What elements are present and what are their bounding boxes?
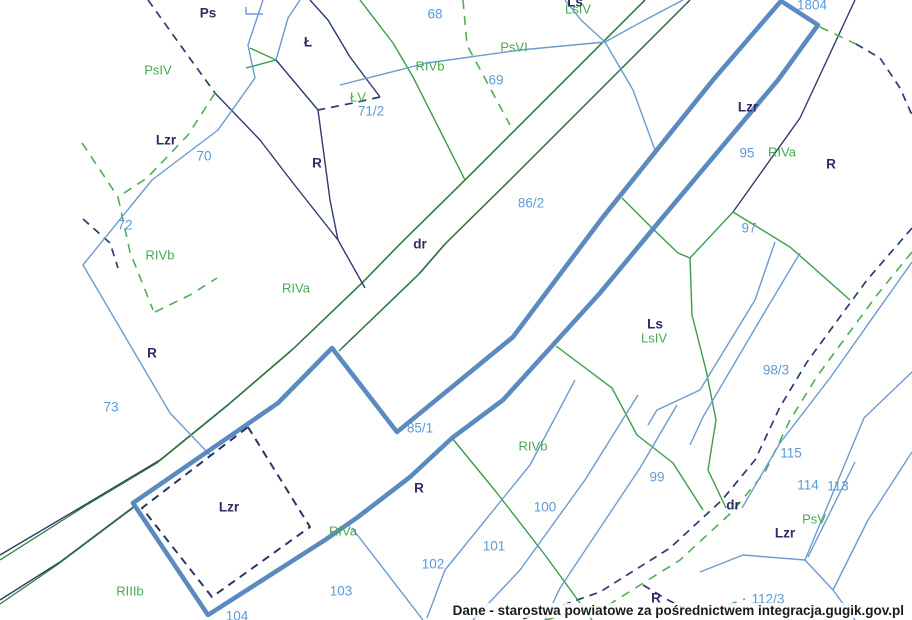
parcel-number-label-68: 68 <box>427 7 442 21</box>
landuse-type-label-R: R <box>826 157 836 171</box>
parcel-number-label-113: 113 <box>827 479 849 493</box>
parcel-number-label-100: 100 <box>534 500 557 514</box>
landuse-type-label-Ls: Ls <box>647 317 663 331</box>
landuse-label-PsVI: PsVI <box>500 41 527 54</box>
landuse-type-label-Lzr: Lzr <box>738 100 758 114</box>
parcel-number-label-103: 103 <box>330 584 353 598</box>
parcel-number-label-99: 99 <box>649 470 664 484</box>
parcel-number-label-1804: 1804 <box>797 0 827 12</box>
contour-line <box>340 42 605 85</box>
parcel-number-label-85-1: 85/1 <box>407 421 433 435</box>
landuse-label-RIVb: RIVb <box>519 440 548 453</box>
landuse-label-PsIV: PsIV <box>144 64 171 77</box>
landuse-label-LsIV: LsIV <box>641 332 667 345</box>
landuse-type-label-R: R <box>414 481 424 495</box>
landuse-line <box>360 0 465 180</box>
contour-line <box>276 0 300 60</box>
contour-line <box>605 0 683 42</box>
map-attribution: Dane - starostwa powiatowe za pośrednict… <box>451 603 906 618</box>
contour-line <box>605 42 655 150</box>
parcel-number-label-95: 95 <box>739 146 754 160</box>
parcel-number-label-101: 101 <box>483 539 506 553</box>
parcel-number-label-71-2: 71/2 <box>358 104 384 118</box>
parcel-number-label-104: 104 <box>226 609 249 620</box>
landuse-line <box>246 60 276 68</box>
landuse-line <box>556 346 703 510</box>
road-edge <box>0 3 642 560</box>
landuse-line <box>690 258 726 508</box>
landuse-label-RIVb: RIVb <box>416 60 445 73</box>
landuse-type-label-Lzr: Lzr <box>156 133 176 147</box>
parcel-boundary <box>215 93 365 288</box>
map-canvas[interactable]: 68697071/2727385/186/2959798/39910010110… <box>0 0 912 620</box>
landuse-dashed <box>155 278 217 312</box>
landuse-dashed <box>82 143 118 197</box>
contour-line <box>352 528 423 620</box>
landuse-label-RIIIb: RIIIb <box>116 585 143 598</box>
landuse-label-RIVa: RIVa <box>768 146 796 159</box>
road-corridor <box>0 0 690 604</box>
landuse-label-PsV: PsV <box>802 513 826 526</box>
parcel-boundaries-navy <box>83 0 912 613</box>
parcel-number-label-97: 97 <box>741 221 756 235</box>
landuse-dashed <box>820 27 856 44</box>
landuse-contours <box>82 0 850 620</box>
parcel-number-label-115: 115 <box>780 446 802 460</box>
parcel-number-label-102: 102 <box>422 557 445 571</box>
landuse-type-label-Lzr: Lzr <box>219 500 239 514</box>
road-edge <box>0 0 645 555</box>
landuse-type-label-Ps: Ps <box>200 6 217 20</box>
landuse-label-RIVa: RIVa <box>329 525 357 538</box>
parcel-boundary <box>318 110 338 240</box>
landuse-label-RIVa: RIVa <box>282 282 310 295</box>
parcel-boundary <box>310 0 380 97</box>
contour-line <box>690 253 800 445</box>
parcel-number-label-114: 114 <box>797 478 819 492</box>
contour-line <box>83 0 263 455</box>
parcel-boundary-dashed <box>856 44 912 115</box>
road-edge <box>0 508 133 604</box>
parcel-number-label-72: 72 <box>117 218 132 232</box>
contour-line <box>742 262 912 508</box>
landuse-label--V: ŁV <box>350 91 366 104</box>
parcel-number-label-98-3: 98/3 <box>763 363 789 377</box>
contour-line <box>808 462 855 557</box>
parcel-number-label-86-2: 86/2 <box>518 196 544 210</box>
landuse-type-label-R: R <box>312 156 322 170</box>
landuse-dashed <box>118 93 215 310</box>
parcel-number-label-70: 70 <box>196 149 211 163</box>
parcel-number-label-69: 69 <box>488 73 503 87</box>
landuse-type-label-Ls: Ls <box>567 0 583 9</box>
contour-line <box>833 452 912 590</box>
landuse-type-label-Lzr: Lzr <box>775 526 795 540</box>
parcel-number-label-73: 73 <box>103 400 118 414</box>
selected-parcel-outline[interactable] <box>133 1 818 615</box>
landuse-type-label--: Ł <box>304 35 312 49</box>
landuse-dashed <box>463 0 510 125</box>
landuse-line <box>250 48 276 60</box>
landuse-label-RIVb: RIVb <box>146 249 175 262</box>
landuse-line <box>452 438 592 620</box>
landuse-type-label-dr: dr <box>413 237 427 251</box>
landuse-line <box>690 212 733 258</box>
landuse-type-label-R: R <box>147 346 157 360</box>
landuse-type-label-dr: dr <box>726 498 740 512</box>
parcel-boundary <box>276 60 318 110</box>
